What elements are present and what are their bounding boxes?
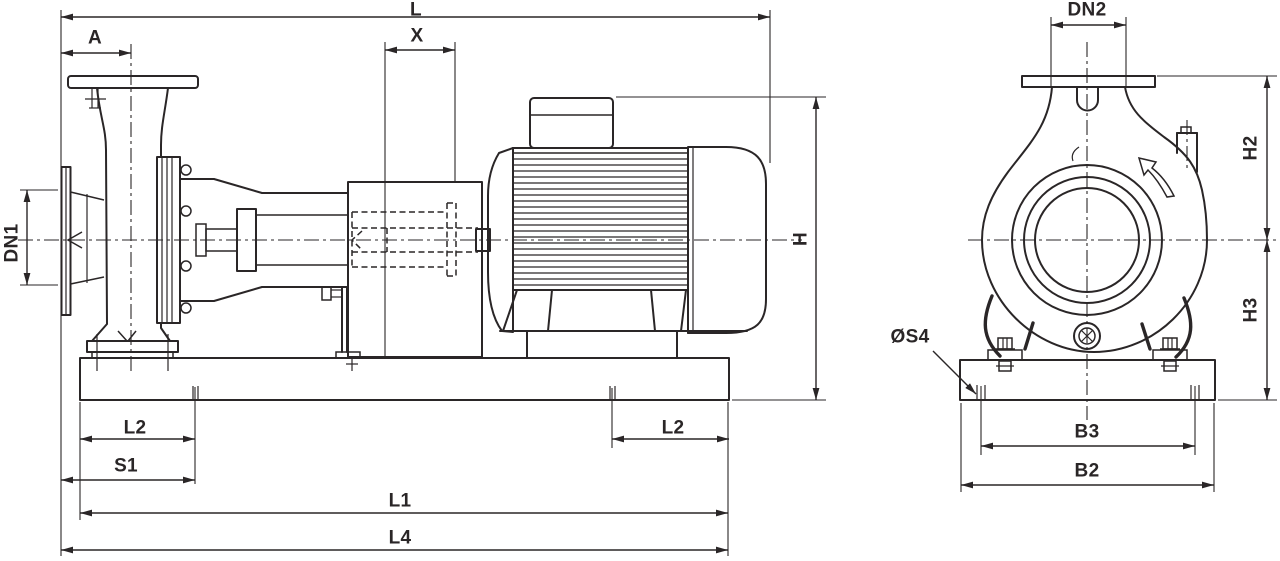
side-view-dimensions xyxy=(20,10,826,556)
drain-plug xyxy=(1074,323,1100,349)
side-view xyxy=(18,10,826,556)
dim-label-l4: L4 xyxy=(389,529,412,548)
pump-dimensional-drawing: L A X DN1 H L2 S1 L1 L4 L2 DN2 H2 H3 ØS4… xyxy=(0,0,1280,561)
end-view-dimensions xyxy=(933,17,1277,492)
dim-label-h2: H2 xyxy=(1242,136,1261,161)
motor-fins xyxy=(513,159,688,285)
dim-label-h: H xyxy=(792,232,811,246)
pump-foot xyxy=(87,331,178,371)
dim-label-dn1: DN1 xyxy=(3,224,22,263)
motor xyxy=(488,98,766,358)
dim-label-s4: ØS4 xyxy=(891,328,930,347)
dim-label-l1: L1 xyxy=(389,492,412,511)
pump-casing xyxy=(62,76,199,371)
leader-S4 xyxy=(933,351,976,394)
discharge-flange-end xyxy=(1022,76,1155,87)
dim-label-h3: H3 xyxy=(1242,298,1261,323)
motor-feet xyxy=(500,290,747,358)
vent-plug xyxy=(1177,120,1197,172)
centerlines xyxy=(18,44,802,372)
dim-label-x: X xyxy=(411,27,424,46)
dim-label-b2: B2 xyxy=(1075,462,1100,481)
terminal-box xyxy=(530,98,613,148)
end-view xyxy=(933,17,1278,492)
dim-label-dn2: DN2 xyxy=(1068,1,1107,20)
dim-label-a: A xyxy=(88,29,102,48)
coupling-guard xyxy=(348,182,490,357)
centerlines xyxy=(968,42,1278,420)
dim-label-l2-right: L2 xyxy=(662,419,685,438)
dim-label-l: L xyxy=(410,1,422,20)
volute-casing xyxy=(982,76,1207,371)
bearing-bracket xyxy=(180,179,360,371)
dim-label-s1: S1 xyxy=(114,457,138,476)
baseplate-side xyxy=(80,358,729,400)
dim-label-b3: B3 xyxy=(1075,423,1100,442)
dim-label-l2-left: L2 xyxy=(124,419,147,438)
discharge-flange xyxy=(68,76,198,88)
